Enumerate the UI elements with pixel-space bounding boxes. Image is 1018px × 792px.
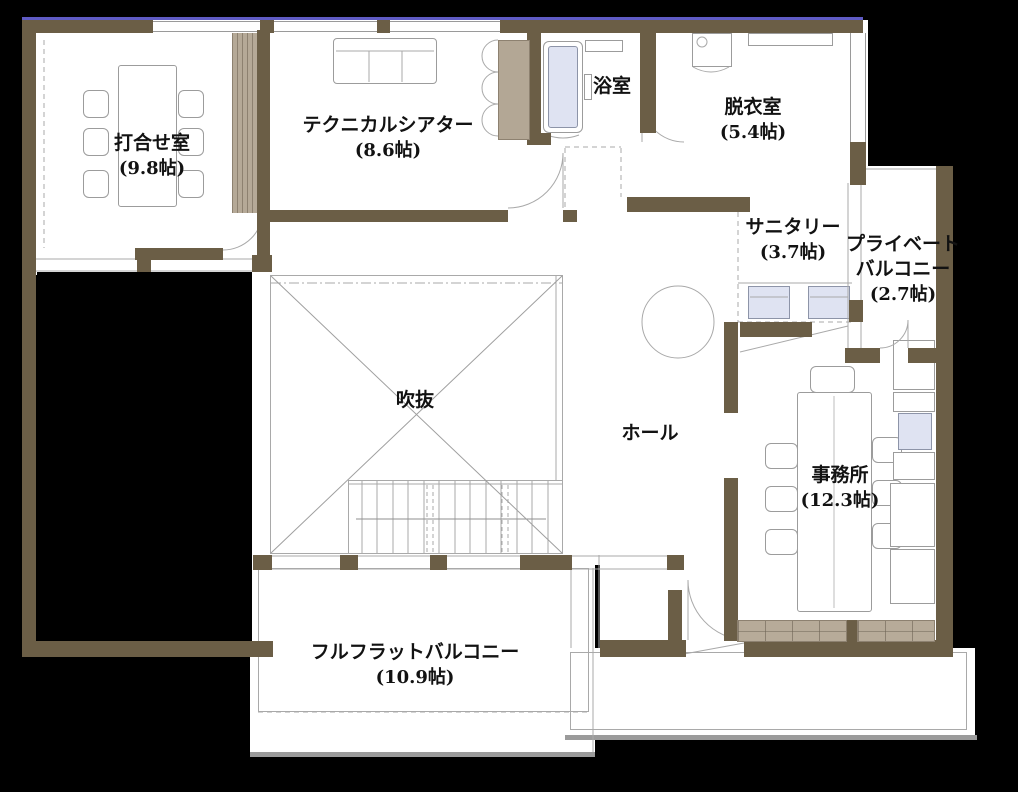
tiled-ledge	[737, 620, 847, 642]
wall-segment	[744, 640, 953, 657]
room-label-bath: 浴室	[593, 74, 631, 99]
wall-segment	[22, 641, 273, 657]
tiled-ledge	[857, 620, 935, 642]
wall-segment	[527, 133, 551, 145]
wall-segment	[908, 348, 953, 363]
wall-post	[430, 555, 447, 570]
wall-segment	[520, 555, 572, 570]
wall-segment	[22, 20, 153, 33]
floor-plan-canvas: 打合せ室 (9.8帖) テクニカルシアター (8.6帖) 浴室 脱衣室 (5.4…	[0, 0, 1018, 792]
room-label-office: 事務所 (12.3帖)	[801, 463, 880, 513]
wall-post	[667, 555, 684, 570]
room-label-sanitary: サニタリー (3.7帖)	[745, 215, 840, 265]
wall-segment	[263, 210, 508, 222]
hall-round-table	[642, 286, 714, 358]
window	[153, 21, 260, 32]
wall-segment	[600, 640, 686, 657]
window	[390, 21, 500, 32]
wall-segment	[724, 565, 738, 641]
wall-segment	[936, 363, 953, 657]
door-arc-theater	[508, 153, 563, 208]
room-label-dressing: 脱衣室 (5.4帖)	[720, 95, 786, 145]
wall-segment	[500, 20, 863, 33]
room-label-void: 吹抜	[396, 388, 434, 413]
window	[850, 33, 866, 142]
closet	[498, 40, 530, 140]
wall-segment	[137, 258, 151, 272]
wall-segment	[724, 322, 738, 338]
wall-segment	[257, 30, 270, 260]
room-label-private-balcony: プライベート バルコニー (2.7帖)	[846, 232, 960, 307]
wall-segment	[724, 338, 738, 413]
wall-segment	[640, 33, 656, 133]
doorway	[724, 413, 738, 478]
room-label-meeting: 打合せ室 (9.8帖)	[114, 131, 190, 181]
wall-segment	[740, 322, 812, 337]
wall-post	[253, 555, 272, 570]
wall-segment	[22, 20, 36, 657]
wall-segment	[563, 210, 577, 222]
wall-segment	[850, 142, 866, 185]
room-label-balcony: フルフラットバルコニー (10.9帖)	[311, 640, 520, 690]
room-label-theater: テクニカルシアター (8.6帖)	[302, 113, 473, 163]
wall-segment	[252, 255, 272, 272]
wall-segment	[724, 478, 738, 565]
door-arc-private-balcony	[880, 320, 908, 348]
wall-segment	[627, 197, 750, 212]
window	[274, 21, 377, 32]
lower-roof-outline	[571, 653, 967, 730]
wall-segment	[668, 590, 682, 640]
wall-segment	[377, 20, 390, 33]
room-label-hall: ホール	[621, 421, 678, 446]
wall-segment	[845, 348, 880, 363]
wall-post	[340, 555, 358, 570]
louver-panel	[232, 33, 257, 213]
wall-post	[847, 620, 857, 642]
folding-door-arcs	[482, 40, 498, 136]
